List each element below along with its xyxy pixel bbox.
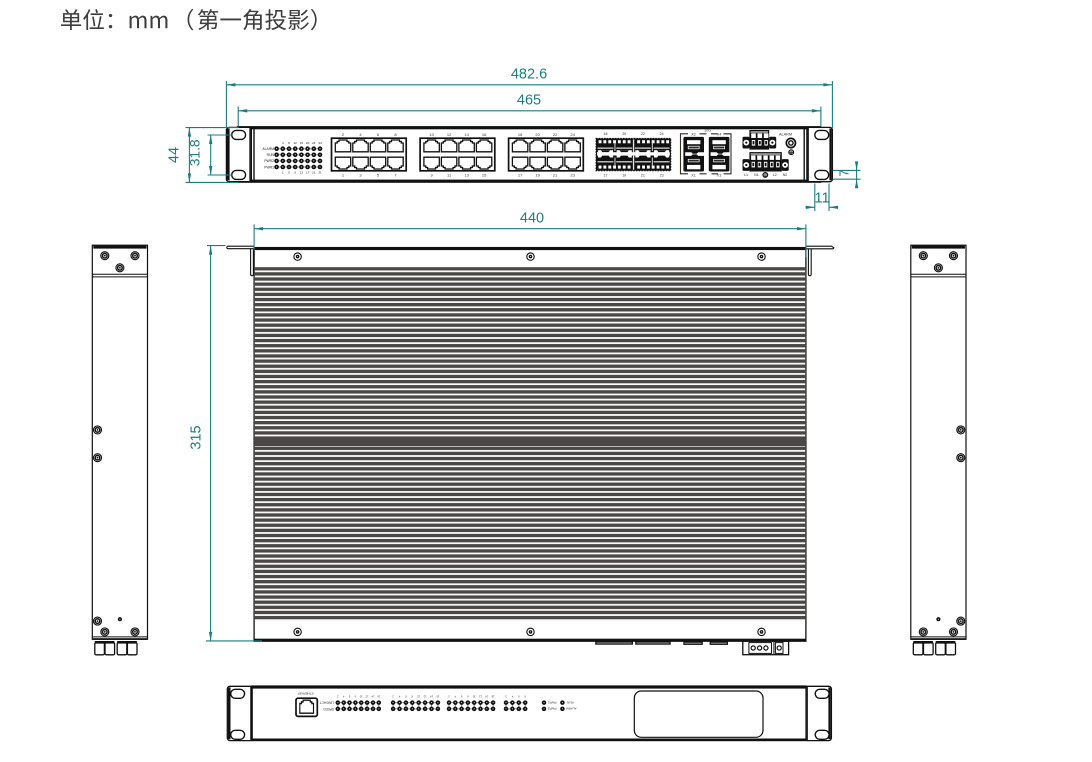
svg-text:23: 23: [660, 174, 664, 178]
svg-text:18: 18: [604, 132, 608, 136]
svg-text:14: 14: [464, 132, 469, 137]
svg-text:13: 13: [464, 172, 469, 177]
svg-text:X2: X2: [691, 132, 696, 136]
svg-text:ETHERNET: ETHERNET: [297, 692, 313, 696]
svg-text:44: 44: [167, 147, 183, 163]
svg-text:22: 22: [553, 132, 558, 137]
svg-text:465: 465: [517, 93, 541, 109]
svg-text:PWR2: PWR2: [548, 707, 557, 711]
svg-text:N1: N1: [754, 173, 759, 177]
svg-text:RUN: RUN: [267, 153, 275, 157]
svg-text:N2: N2: [783, 173, 788, 177]
svg-text:31: 31: [318, 171, 322, 175]
svg-text:X1: X1: [691, 173, 696, 177]
svg-text:ALARM: ALARM: [566, 707, 577, 711]
svg-text:L1: L1: [744, 173, 748, 177]
svg-text:7: 7: [836, 169, 851, 176]
svg-text:21: 21: [312, 171, 316, 175]
svg-text:17: 17: [306, 171, 310, 175]
svg-text:LINK/ACT: LINK/ACT: [320, 701, 334, 705]
svg-text:19: 19: [622, 174, 626, 178]
svg-text:11: 11: [814, 191, 829, 207]
svg-text:21: 21: [553, 172, 558, 177]
svg-text:23: 23: [570, 172, 575, 177]
svg-text:12: 12: [447, 132, 452, 137]
svg-text:PWR1: PWR1: [264, 165, 274, 169]
svg-text:12: 12: [294, 141, 298, 145]
svg-text:16: 16: [300, 141, 304, 145]
svg-text:16: 16: [482, 132, 487, 137]
svg-text:18: 18: [518, 132, 523, 137]
svg-text:L2: L2: [773, 173, 777, 177]
svg-text:21: 21: [641, 174, 645, 178]
svg-text:SPEED: SPEED: [322, 707, 334, 711]
svg-text:34: 34: [318, 141, 322, 145]
svg-text:440: 440: [520, 211, 544, 227]
svg-text:10G: 10G: [704, 129, 711, 133]
svg-text:24: 24: [660, 132, 664, 136]
svg-text:13: 13: [300, 171, 304, 175]
svg-text:ALARM: ALARM: [262, 147, 274, 151]
svg-text:24: 24: [312, 141, 316, 145]
svg-text:17: 17: [604, 174, 608, 178]
svg-text:315: 315: [189, 425, 205, 449]
svg-text:20: 20: [622, 132, 626, 136]
svg-text:20: 20: [306, 141, 310, 145]
svg-text:RUN: RUN: [567, 700, 574, 704]
svg-text:15: 15: [482, 172, 487, 177]
svg-text:PWR1: PWR1: [548, 700, 557, 704]
svg-text:24: 24: [570, 132, 575, 137]
svg-text:20: 20: [535, 132, 540, 137]
svg-text:31.8: 31.8: [188, 139, 203, 166]
svg-text:X4: X4: [717, 132, 722, 136]
svg-text:482.6: 482.6: [511, 67, 547, 83]
svg-text:19: 19: [535, 172, 540, 177]
svg-text:10: 10: [429, 132, 434, 137]
svg-text:PWR2: PWR2: [264, 159, 274, 163]
svg-text:X3: X3: [717, 173, 722, 177]
svg-text:ALARM: ALARM: [779, 133, 792, 137]
svg-text:17: 17: [518, 172, 523, 177]
svg-text:22: 22: [641, 132, 645, 136]
